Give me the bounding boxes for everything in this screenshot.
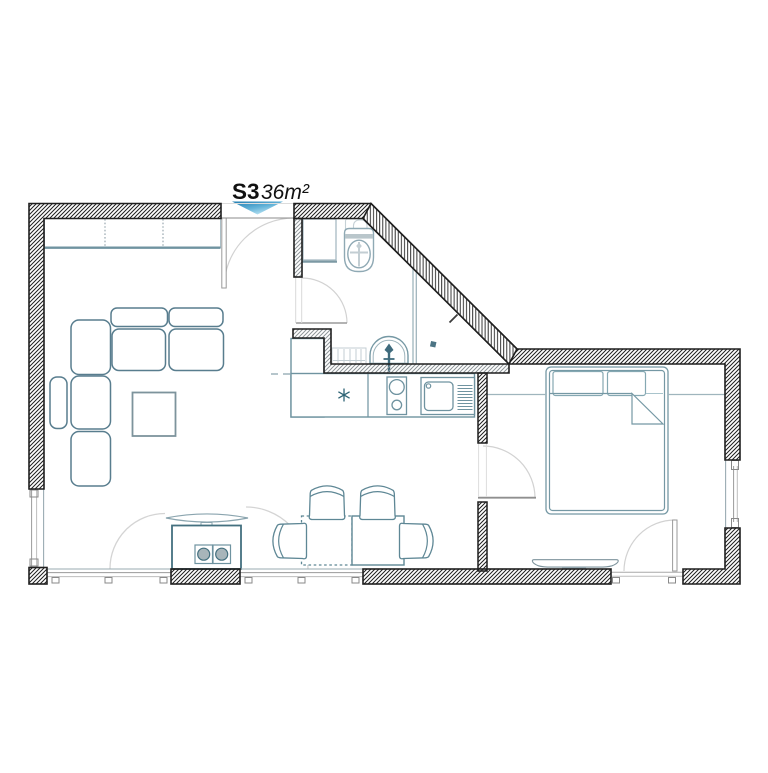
svg-text:36m²: 36m² xyxy=(261,181,310,204)
svg-text:S3: S3 xyxy=(232,179,260,204)
